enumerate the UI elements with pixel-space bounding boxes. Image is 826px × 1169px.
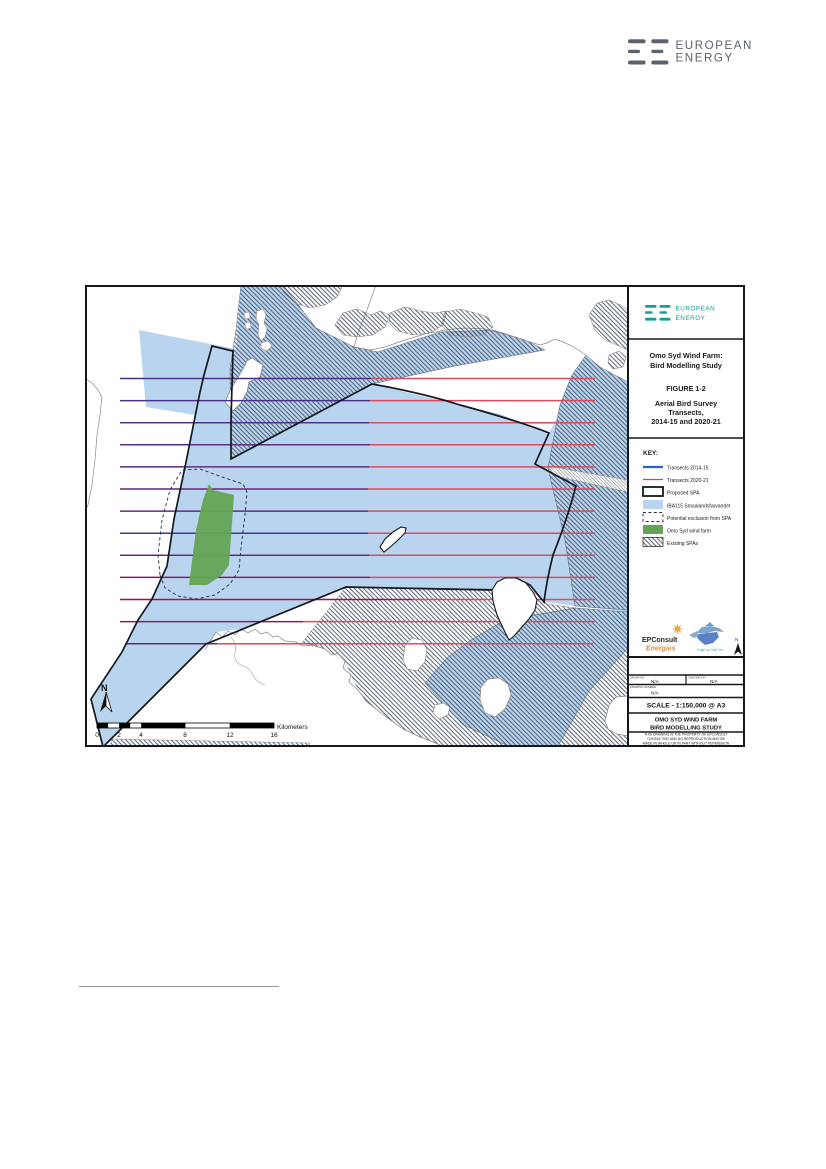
svg-text:BIRD MODELLING STUDY: BIRD MODELLING STUDY: [650, 726, 722, 732]
svg-text:KEY:: KEY:: [643, 450, 658, 457]
svg-text:Transects,: Transects,: [668, 408, 704, 417]
svg-text:Omo Syd wind farm: Omo Syd wind farm: [667, 529, 711, 535]
svg-text:N: N: [735, 637, 738, 642]
svg-text:2014-15 and 2020-21: 2014-15 and 2020-21: [651, 417, 721, 426]
svg-text:CONSULTING AND NO REPRODUCTION: CONSULTING AND NO REPRODUCTION MAY BE: [647, 737, 726, 741]
svg-text:Energies: Energies: [646, 646, 676, 653]
svg-text:ENERGY: ENERGY: [676, 52, 734, 65]
svg-text:12: 12: [226, 732, 234, 739]
svg-text:DRAWN BY: DRAWN BY: [630, 676, 645, 680]
svg-text:N/A: N/A: [651, 679, 660, 684]
svg-text:Aerial Bird Survey: Aerial Bird Survey: [655, 399, 717, 408]
svg-text:EPConsult: EPConsult: [642, 637, 678, 644]
svg-text:2: 2: [117, 732, 121, 739]
svg-text:8: 8: [183, 732, 187, 739]
svg-text:N: N: [101, 683, 108, 693]
svg-text:FIGURE 1-2: FIGURE 1-2: [666, 384, 706, 393]
svg-text:Proposed SPA: Proposed SPA: [667, 491, 700, 497]
svg-text:THIS DRAWING IS THE PROPERTY O: THIS DRAWING IS THE PROPERTY OF EPCONSUL…: [644, 733, 727, 737]
svg-text:N/A: N/A: [710, 679, 719, 684]
svg-text:OMO SYD WIND FARM: OMO SYD WIND FARM: [655, 718, 718, 724]
svg-text:Fugle og Omd Vet: Fugle og Omd Vet: [697, 648, 723, 652]
svg-text:IBA115 Smaalandsfarvandet: IBA115 Smaalandsfarvandet: [667, 504, 731, 510]
svg-text:EUROPEAN: EUROPEAN: [676, 39, 753, 52]
svg-text:Existing SPAs: Existing SPAs: [667, 541, 699, 547]
svg-text:Potential exclusion from SPA: Potential exclusion from SPA: [667, 516, 732, 522]
svg-text:Transects 2014-15: Transects 2014-15: [667, 466, 709, 472]
svg-text:16: 16: [270, 732, 278, 739]
svg-text:Omo Syd Wind Farm:: Omo Syd Wind Farm:: [649, 351, 722, 360]
svg-text:SCALE - 1:150,000 @ A3: SCALE - 1:150,000 @ A3: [647, 703, 726, 710]
svg-text:CHECKED BY: CHECKED BY: [688, 676, 706, 680]
svg-text:MADE IN WHOLE OR IN PART WITHO: MADE IN WHOLE OR IN PART WITHOUT PERMISS…: [643, 742, 730, 746]
svg-text:EUROPEAN: EUROPEAN: [676, 306, 716, 313]
svg-text:N/A: N/A: [651, 691, 660, 696]
svg-text:Transects 2020-21: Transects 2020-21: [667, 478, 709, 484]
svg-text:ENERGY: ENERGY: [676, 315, 706, 322]
svg-text:DRAWING NUMBER: DRAWING NUMBER: [630, 685, 656, 689]
svg-text:0: 0: [95, 732, 99, 739]
svg-text:Kilometers: Kilometers: [277, 724, 308, 731]
svg-text:Bird Modelling Study: Bird Modelling Study: [650, 361, 722, 370]
svg-text:4: 4: [139, 732, 143, 739]
